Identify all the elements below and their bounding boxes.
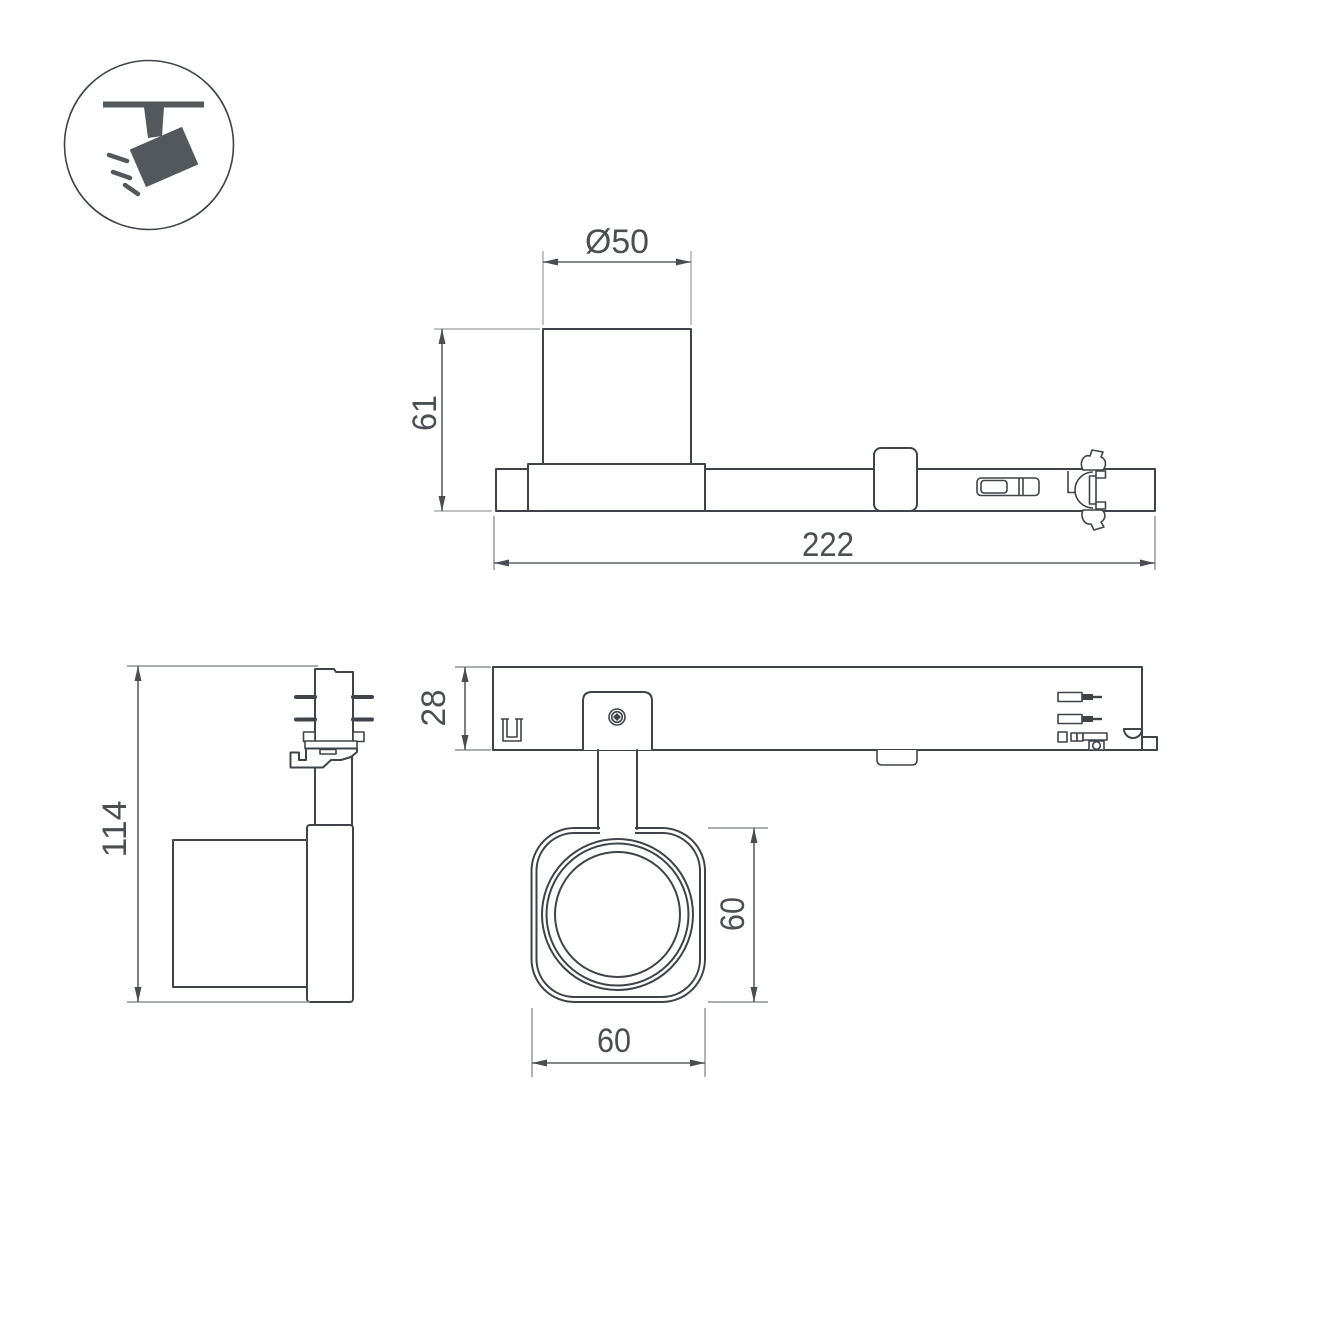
lamp-base-block <box>528 464 705 511</box>
dim-label-head-width: 60 <box>597 1022 631 1060</box>
mount-box-plan <box>877 750 917 765</box>
track-spotlight-icon <box>65 61 234 230</box>
dimension-head-height: 60 <box>708 828 768 1002</box>
clip-wing-bottom <box>1082 510 1105 530</box>
dim-label-overall-height: 114 <box>96 801 134 858</box>
dim-label-lamp-height: 61 <box>406 395 444 431</box>
head-outline-outer <box>532 828 706 1002</box>
dimension-lamp-diameter: Ø50 <box>543 223 691 325</box>
mount-box <box>874 448 917 511</box>
view-side-elevation <box>496 329 1155 530</box>
switch-knob <box>981 481 1007 494</box>
clip-wing-top <box>1081 450 1105 470</box>
view-front-side <box>173 669 372 1002</box>
track-plug-body <box>315 669 353 745</box>
lamp-barrel-side <box>173 840 307 987</box>
icon-track-bar <box>103 102 204 108</box>
lamp-cylinder <box>543 329 691 464</box>
view-front <box>532 750 706 1002</box>
power-switch <box>977 478 1039 496</box>
dim-label-adapter-depth: 28 <box>415 690 453 727</box>
plug-tab-right <box>353 732 364 742</box>
plug-plate <box>305 741 357 749</box>
view-plan <box>493 667 1157 765</box>
dim-label-adapter-length: 222 <box>802 526 854 564</box>
lock-latch <box>291 749 358 768</box>
technical-drawing-page: Ø50 61 222 114 <box>0 0 1331 1331</box>
drawing-canvas: Ø50 61 222 114 <box>0 0 1331 1331</box>
dimension-head-width: 60 <box>532 1008 705 1077</box>
dim-label-lamp-diameter: Ø50 <box>585 223 649 261</box>
lamp-body-side <box>307 825 353 1002</box>
adapter-end-tab <box>1142 737 1157 750</box>
dim-label-head-height: 60 <box>714 897 752 931</box>
dimension-adapter-length: 222 <box>494 516 1155 570</box>
dimension-adapter-depth: 28 <box>415 667 491 750</box>
mount-plate-plan <box>583 692 652 750</box>
plug-tab-left <box>304 732 316 742</box>
fixing-screw <box>609 709 625 725</box>
